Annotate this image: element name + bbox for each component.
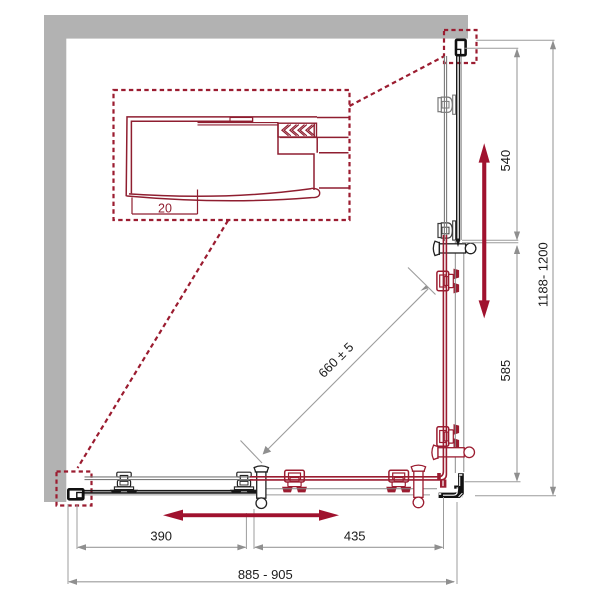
svg-text:1188- 1200: 1188- 1200 (536, 242, 551, 307)
svg-text:435: 435 (344, 528, 366, 543)
svg-text:390: 390 (150, 528, 172, 543)
svg-text:20: 20 (158, 202, 172, 216)
svg-text:885 - 905: 885 - 905 (238, 567, 293, 582)
svg-text:660 ± 5: 660 ± 5 (315, 339, 356, 380)
svg-text:540: 540 (498, 150, 513, 172)
svg-text:585: 585 (498, 360, 513, 382)
